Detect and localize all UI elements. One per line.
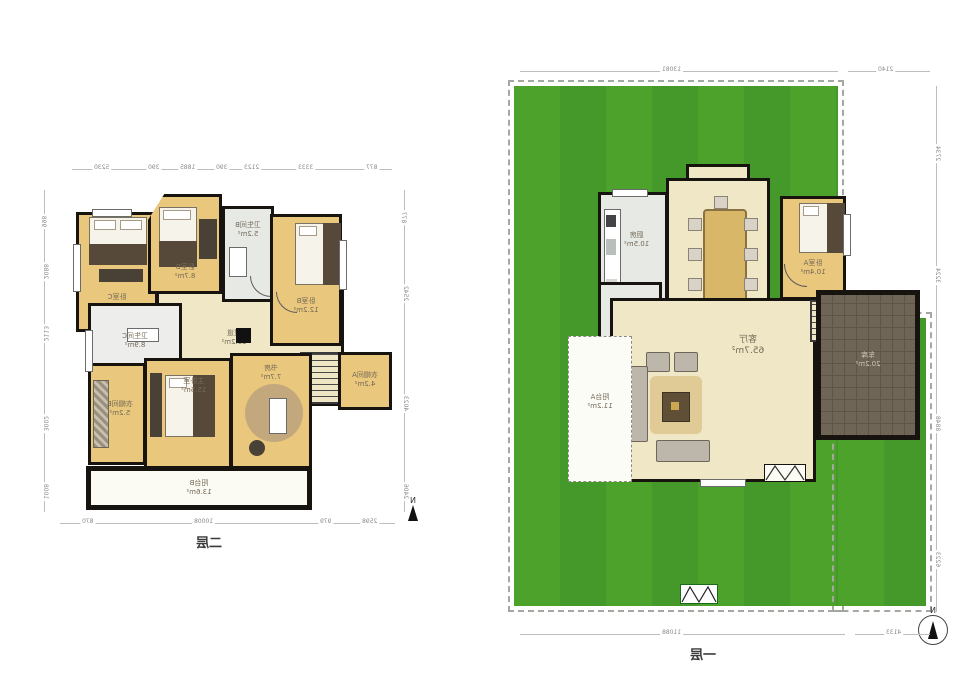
dim-label: 979 bbox=[318, 518, 333, 525]
chair-icon bbox=[688, 218, 702, 231]
bed-icon bbox=[799, 203, 845, 253]
f1-dimline-right bbox=[936, 86, 937, 612]
dim-label: 390 bbox=[146, 164, 161, 171]
bed-icon bbox=[159, 207, 197, 267]
chair-icon bbox=[744, 248, 758, 261]
table-decor-icon bbox=[671, 402, 679, 410]
dim-label: 2140 bbox=[876, 66, 895, 73]
sink-icon bbox=[127, 328, 159, 342]
dim-label: 2123 bbox=[242, 164, 261, 171]
window-icon bbox=[700, 479, 746, 487]
compass-circle-icon bbox=[918, 615, 948, 645]
room-bedroom-b: 卧室B 12.2m² bbox=[270, 214, 342, 346]
chair-icon bbox=[714, 196, 728, 209]
dim-label: 13081 bbox=[660, 66, 683, 73]
double-door-icon bbox=[764, 464, 806, 482]
bed-icon bbox=[89, 217, 147, 265]
window-icon bbox=[92, 209, 132, 217]
dim-label: 6223 bbox=[934, 550, 941, 569]
dim-label: 2113 bbox=[42, 324, 49, 343]
dim-label: 390 bbox=[214, 164, 229, 171]
dim-label: 1008 bbox=[42, 482, 49, 501]
dim-label: 2598 bbox=[360, 518, 379, 525]
pillow-icon bbox=[163, 210, 191, 220]
room-study: 书房 7.7m² bbox=[230, 353, 312, 470]
room-master-bedroom: 主卧室 15.5m² bbox=[144, 358, 232, 470]
window-icon bbox=[339, 240, 347, 290]
dim-label: 8848 bbox=[934, 414, 941, 433]
dim-label: 3224 bbox=[934, 266, 941, 285]
stool-icon bbox=[249, 440, 265, 456]
pillow-icon bbox=[169, 378, 187, 388]
pillow-icon bbox=[299, 226, 317, 236]
f2-dimline-top bbox=[72, 169, 392, 170]
chair-icon bbox=[744, 278, 758, 291]
north-arrow-icon bbox=[928, 621, 938, 639]
wardrobe-icon bbox=[199, 219, 217, 259]
wardrobe-icon bbox=[93, 380, 109, 448]
pillow-icon bbox=[803, 206, 819, 216]
f1-north-compass-icon: N bbox=[918, 606, 948, 645]
dim-label: 2406 bbox=[402, 482, 409, 501]
floor1-title: 一层 bbox=[690, 644, 716, 663]
room-bedroom-d: 卧室D 8.7m² bbox=[148, 194, 222, 294]
chair-icon bbox=[744, 218, 758, 231]
room-cloak-b: 衣帽间B 5.2m² bbox=[88, 363, 146, 465]
armchair-icon bbox=[646, 352, 670, 372]
dim-label: 998 bbox=[40, 214, 47, 229]
dim-label: 5230 bbox=[92, 164, 111, 171]
room-bedroom-a: 卧室A 10.4m² bbox=[780, 196, 846, 300]
dim-label: 4133 bbox=[884, 629, 903, 636]
room-label: 书房 7.7m² bbox=[233, 364, 309, 382]
armchair-icon bbox=[674, 352, 698, 372]
floorplan-page: { "floor2": { "title": "二层", "north": "N… bbox=[0, 0, 960, 692]
pillow-icon bbox=[120, 220, 142, 230]
bed-icon bbox=[295, 223, 341, 285]
dining-table-icon bbox=[703, 209, 747, 307]
stove-icon bbox=[606, 215, 616, 227]
room-balcony-a: 阳台A 11.2m² bbox=[568, 336, 632, 482]
blanket-icon bbox=[89, 244, 147, 265]
desk-icon bbox=[269, 398, 287, 434]
room-label: 阳台B 13.6m² bbox=[91, 479, 307, 497]
dim-label: 870 bbox=[80, 518, 95, 525]
dim-label: 10008 bbox=[192, 518, 215, 525]
sink-icon bbox=[606, 239, 616, 255]
window-icon bbox=[85, 330, 93, 372]
f2-dimline-bottom bbox=[60, 523, 395, 524]
dresser-icon bbox=[99, 269, 143, 282]
dim-label: 877 bbox=[400, 210, 407, 225]
room-label: 阳台A 11.2m² bbox=[569, 393, 631, 411]
chimney-icon bbox=[236, 328, 251, 343]
window-icon bbox=[612, 189, 648, 197]
chair-icon bbox=[688, 248, 702, 261]
f2-dimline-left bbox=[44, 190, 45, 512]
pillow-icon bbox=[94, 220, 116, 230]
floor2-title: 二层 bbox=[196, 532, 222, 551]
dim-label: 2542 bbox=[402, 284, 409, 303]
dim-label: 2088 bbox=[42, 262, 49, 281]
room-balcony-b: 阳台B 13.6m² bbox=[86, 466, 312, 510]
dim-label: 2734 bbox=[934, 144, 941, 163]
blanket-icon bbox=[193, 375, 215, 437]
room-garage: 车库 20.2m² bbox=[816, 290, 920, 440]
north-arrow-icon bbox=[408, 505, 418, 521]
blanket-icon bbox=[159, 241, 197, 267]
wardrobe-icon bbox=[150, 373, 162, 437]
bed-icon bbox=[165, 375, 215, 437]
f2-dimline-right bbox=[404, 190, 405, 512]
chair-icon bbox=[688, 278, 702, 291]
window-icon bbox=[843, 214, 851, 256]
sofa-icon bbox=[656, 440, 710, 462]
room-label: 卫生间B 5.2m² bbox=[225, 221, 271, 239]
dim-label: 1885 bbox=[178, 164, 197, 171]
room-label: 客厅 65.7m² bbox=[703, 335, 793, 358]
dim-label: 3002 bbox=[42, 414, 49, 433]
bathtub-icon bbox=[229, 247, 247, 277]
dim-label: 877 bbox=[364, 164, 379, 171]
room-cloak-a: 衣帽间A 4.2m² bbox=[338, 352, 392, 410]
coffee-table-icon bbox=[662, 392, 690, 422]
dim-label: 4023 bbox=[402, 394, 409, 413]
window-icon bbox=[73, 244, 81, 292]
dim-label: 11088 bbox=[660, 629, 683, 636]
room-label: 车库 20.2m² bbox=[821, 351, 915, 369]
lawn-gate-icon bbox=[680, 584, 718, 604]
room-label: 衣帽间A 4.2m² bbox=[341, 371, 389, 389]
dim-label: 3333 bbox=[296, 164, 315, 171]
room-label: 过道 19.2m² bbox=[189, 329, 279, 347]
